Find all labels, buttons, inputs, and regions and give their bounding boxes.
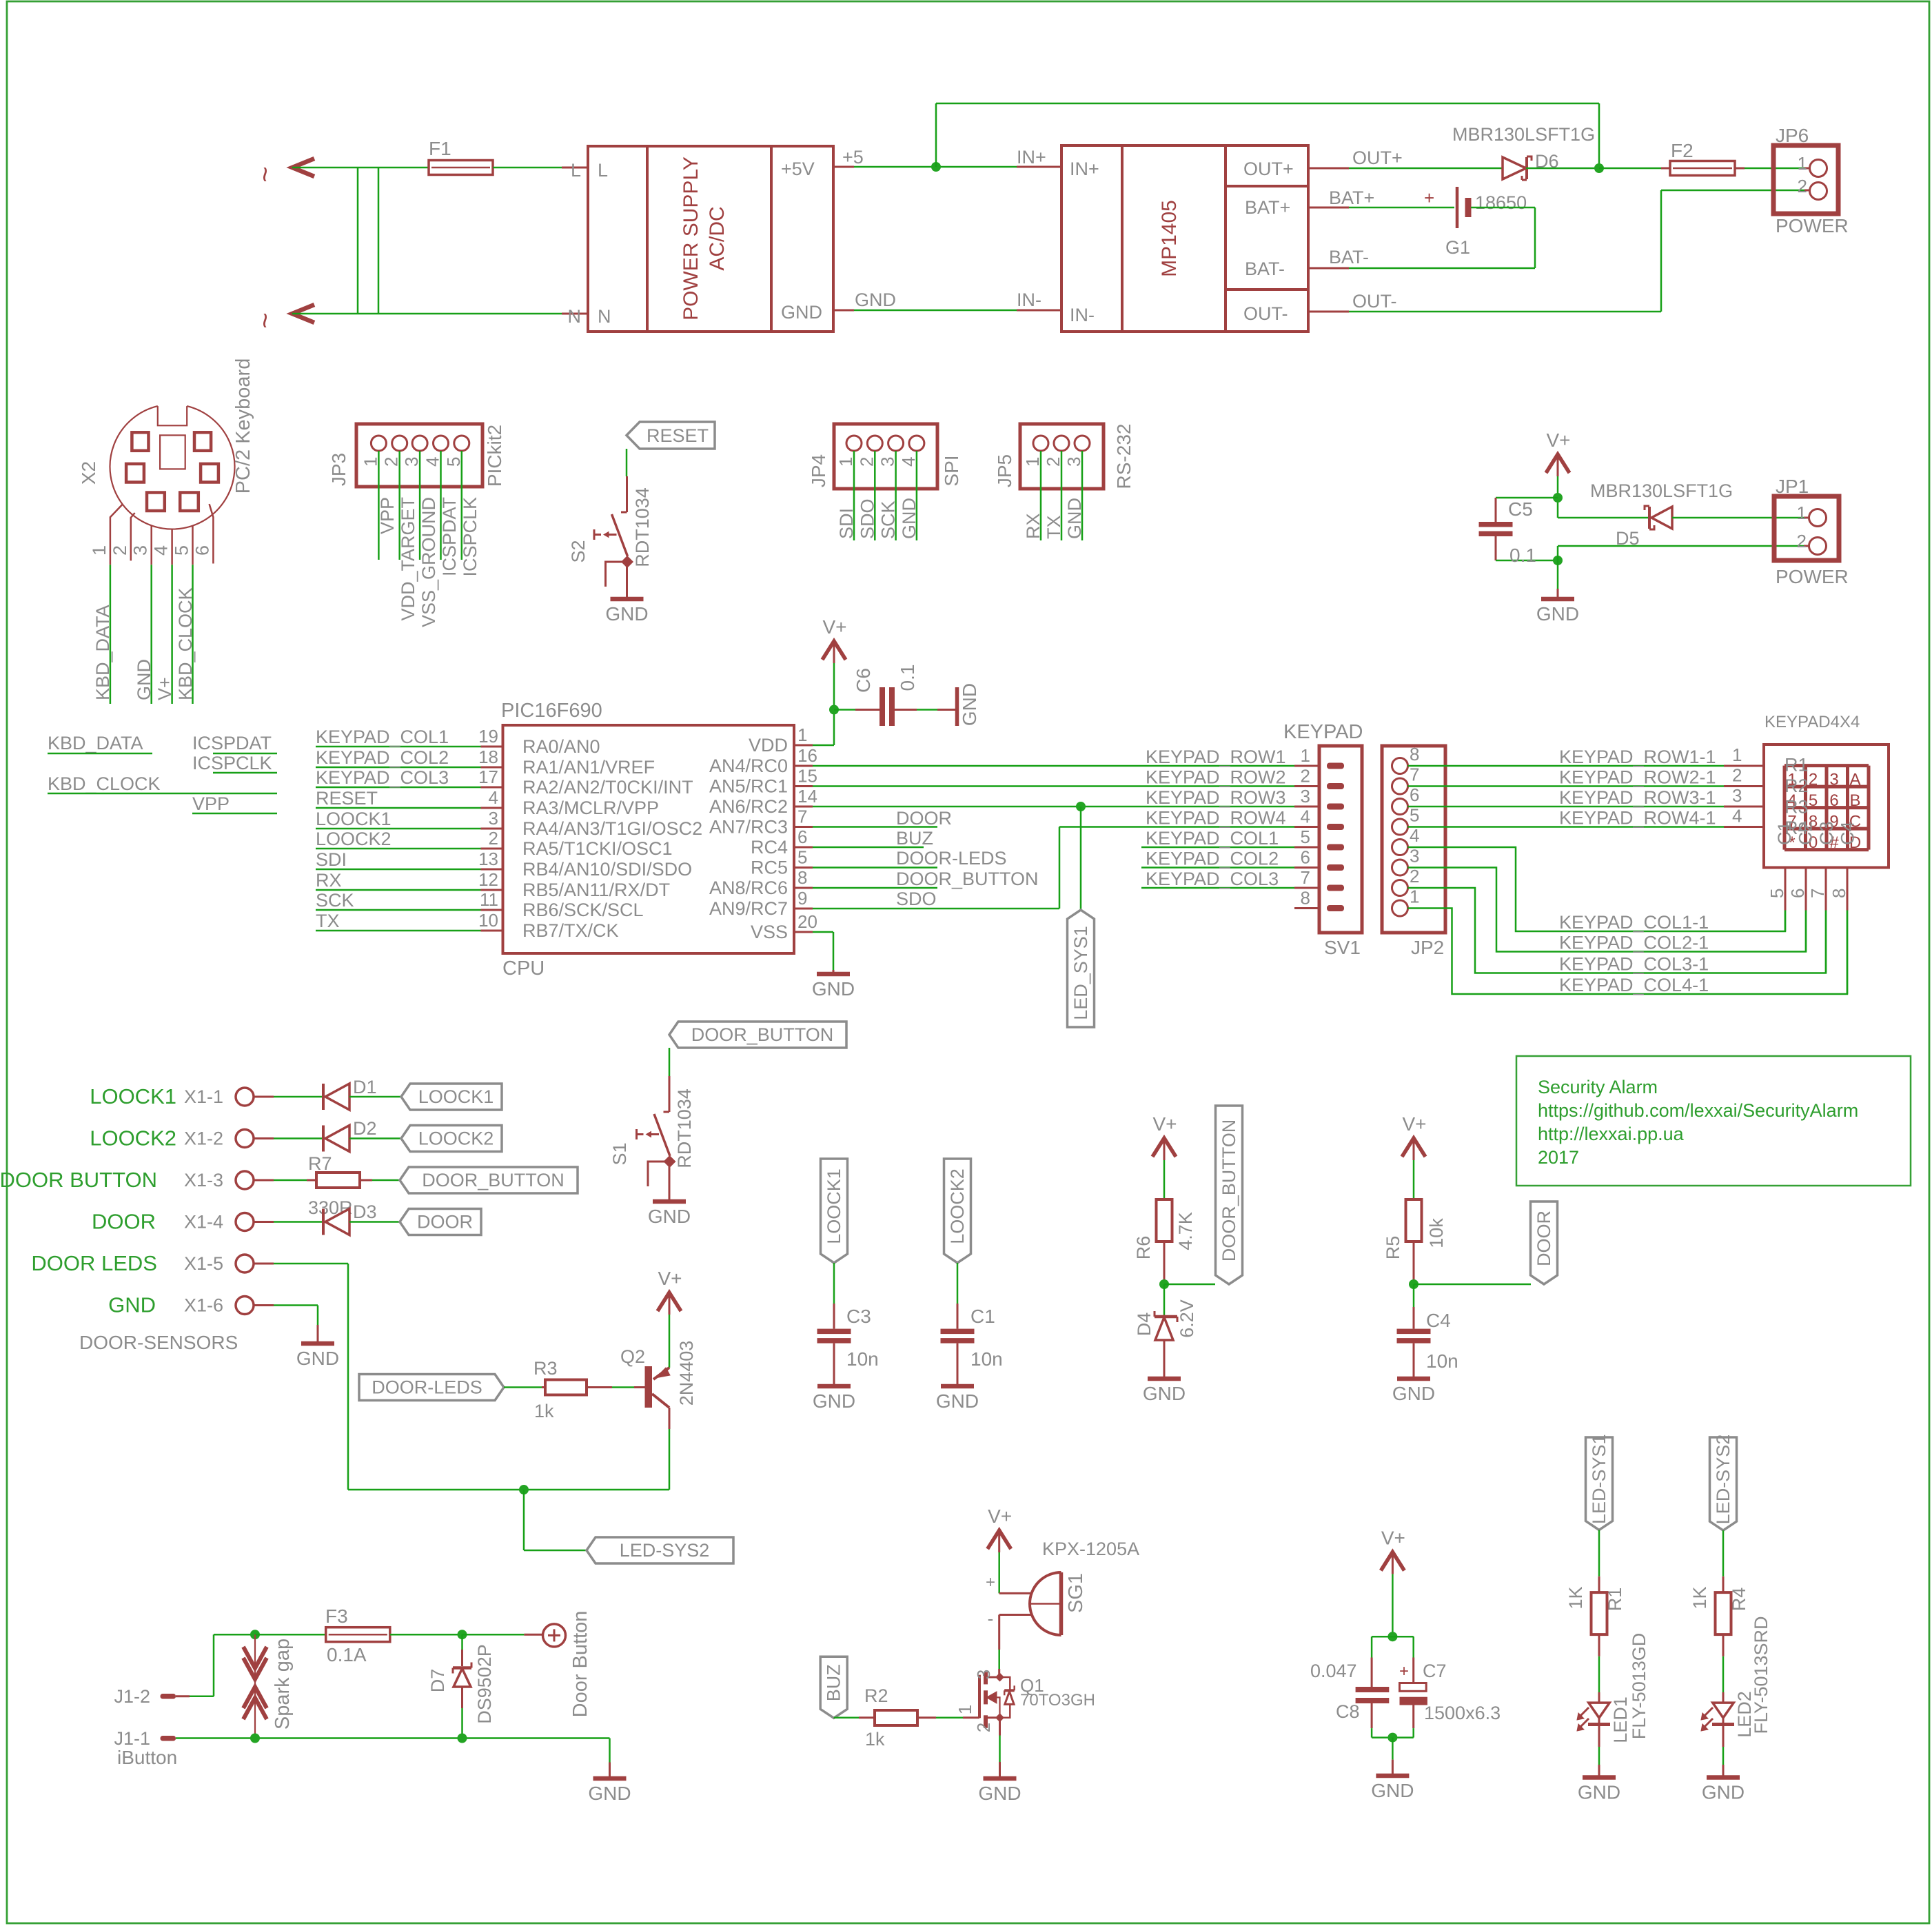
svg-text:ICSPDAT: ICSPDAT	[439, 497, 460, 576]
svg-text:R1: R1	[1784, 755, 1809, 776]
svg-text:1: 1	[1022, 457, 1043, 467]
svg-text:KBD_DATA: KBD_DATA	[92, 605, 113, 700]
svg-text:19: 19	[478, 726, 498, 747]
svg-text:VDD: VDD	[749, 735, 788, 756]
svg-text:Door Button: Door Button	[569, 1611, 591, 1718]
svg-text:3: 3	[401, 457, 422, 467]
svg-text:JP1: JP1	[1776, 476, 1809, 497]
svg-text:KBD_CLOCK: KBD_CLOCK	[48, 773, 161, 794]
svg-text:2: 2	[381, 457, 402, 467]
svg-text:GND: GND	[1371, 1780, 1414, 1801]
svg-text:RA2/AN2/T0CKI/INT: RA2/AN2/T0CKI/INT	[522, 777, 693, 798]
svg-text:8: 8	[797, 867, 807, 888]
svg-text:SDO: SDO	[896, 889, 937, 909]
svg-text:1k: 1k	[865, 1729, 885, 1750]
svg-text:X1-4: X1-4	[184, 1212, 223, 1233]
svg-text:18: 18	[478, 747, 498, 767]
svg-text:RB6/SCK/SCL: RB6/SCK/SCL	[522, 900, 644, 920]
svg-text:2: 2	[1732, 765, 1742, 786]
svg-text:iButton: iButton	[117, 1747, 177, 1768]
svg-text:10n: 10n	[970, 1348, 1003, 1370]
svg-text:LED1: LED1	[1610, 1696, 1631, 1743]
svg-text:3: 3	[973, 1670, 994, 1679]
svg-text:R5: R5	[1383, 1236, 1403, 1260]
svg-text:3: 3	[1829, 771, 1838, 789]
svg-text:KEYPAD_COL2-1: KEYPAD_COL2-1	[1559, 933, 1709, 953]
svg-text:RC4: RC4	[751, 837, 788, 858]
svg-text:N: N	[568, 306, 582, 327]
svg-text:13: 13	[478, 849, 498, 869]
svg-text:+5V: +5V	[781, 159, 815, 179]
svg-text:MBR130LSFT1G: MBR130LSFT1G	[1590, 480, 1733, 501]
svg-text:G1: G1	[1445, 237, 1470, 258]
svg-text:BAT+: BAT+	[1245, 197, 1290, 218]
svg-text:LOOCK1: LOOCK1	[316, 809, 392, 829]
svg-text:KPX-1205A: KPX-1205A	[1042, 1539, 1139, 1559]
svg-text:4: 4	[151, 545, 172, 556]
svg-text:CPU: CPU	[502, 957, 545, 980]
svg-text:330R: 330R	[308, 1197, 353, 1218]
svg-text:5: 5	[1410, 805, 1419, 826]
svg-text:LOOCK2: LOOCK2	[90, 1126, 176, 1150]
svg-text:C2: C2	[1796, 821, 1816, 845]
svg-text:IN+: IN+	[1070, 159, 1099, 179]
svg-text:3: 3	[130, 545, 151, 556]
svg-text:70TO3GH: 70TO3GH	[1020, 1691, 1095, 1710]
svg-text:-: -	[988, 1608, 994, 1629]
svg-text:AN8/RC6: AN8/RC6	[709, 878, 788, 898]
svg-text:VSS_GROUND: VSS_GROUND	[418, 497, 439, 627]
svg-text:2: 2	[1410, 866, 1419, 886]
svg-text:MBR130LSFT1G: MBR130LSFT1G	[1452, 124, 1595, 145]
svg-text:KEYPAD4X4: KEYPAD4X4	[1765, 713, 1860, 731]
svg-text:1: 1	[1410, 886, 1419, 907]
svg-text:BUZ: BUZ	[824, 1664, 844, 1701]
svg-text:GND: GND	[588, 1783, 631, 1804]
svg-text:0.047: 0.047	[1310, 1661, 1357, 1681]
svg-text:4: 4	[898, 457, 919, 467]
svg-text:5: 5	[1767, 889, 1787, 898]
svg-text:6: 6	[1301, 847, 1310, 868]
svg-text:1: 1	[835, 457, 856, 467]
svg-text:10: 10	[478, 910, 498, 931]
svg-text:V+: V+	[1402, 1113, 1426, 1135]
svg-text:V+: V+	[1152, 1113, 1177, 1135]
svg-text:0.1: 0.1	[1509, 545, 1536, 566]
svg-text:C1: C1	[1774, 821, 1795, 845]
svg-text:R3: R3	[1784, 797, 1809, 818]
svg-text:C4: C4	[1426, 1310, 1451, 1331]
svg-text:DOOR: DOOR	[92, 1210, 156, 1234]
svg-text:7: 7	[1410, 764, 1419, 785]
svg-text:F1: F1	[429, 138, 451, 159]
svg-text:1: 1	[1732, 744, 1742, 765]
svg-text:SG1: SG1	[1065, 1573, 1087, 1613]
svg-text:VSS: VSS	[751, 922, 788, 942]
svg-text:1K: 1K	[1689, 1586, 1710, 1609]
svg-text:JP6: JP6	[1776, 125, 1809, 146]
svg-text:IN-: IN-	[1070, 305, 1095, 325]
svg-text:RC5: RC5	[751, 858, 788, 878]
svg-text:L: L	[598, 160, 608, 181]
svg-text:1: 1	[1301, 745, 1310, 766]
svg-text:BAT+: BAT+	[1329, 187, 1374, 208]
svg-text:VPP: VPP	[377, 497, 398, 534]
svg-text:GND: GND	[855, 290, 896, 310]
svg-text:R1: R1	[1605, 1588, 1625, 1612]
svg-text:+: +	[986, 1573, 995, 1592]
svg-text:C1: C1	[970, 1306, 995, 1327]
svg-text:DOOR_BUTTON: DOOR_BUTTON	[691, 1024, 834, 1045]
svg-text:X1-1: X1-1	[184, 1086, 223, 1107]
svg-text:8: 8	[1410, 744, 1419, 764]
svg-text:DOOR-LEDS: DOOR-LEDS	[372, 1377, 482, 1398]
svg-text:AN9/RC7: AN9/RC7	[709, 898, 788, 919]
svg-text:RA5/T1CKI/OSC1: RA5/T1CKI/OSC1	[522, 838, 673, 859]
svg-text:15: 15	[797, 766, 817, 787]
svg-text:LOOCK2: LOOCK2	[418, 1128, 494, 1149]
svg-text:11: 11	[480, 889, 498, 910]
svg-text:GND: GND	[1536, 603, 1579, 625]
svg-text:GND: GND	[605, 603, 648, 625]
svg-text:1: 1	[1798, 153, 1807, 174]
svg-text:16: 16	[797, 745, 817, 766]
svg-text:10n: 10n	[1426, 1350, 1458, 1372]
svg-text:5: 5	[443, 457, 464, 467]
svg-text:X2: X2	[78, 461, 99, 485]
svg-text:http://lexxai.pp.ua: http://lexxai.pp.ua	[1538, 1124, 1685, 1144]
svg-text:1: 1	[360, 457, 380, 467]
svg-text:LED-SYS2: LED-SYS2	[620, 1540, 710, 1561]
svg-text:KEYPAD_COL2: KEYPAD_COL2	[316, 747, 449, 768]
svg-text:5: 5	[1301, 827, 1310, 847]
svg-text:LOOCK1: LOOCK1	[824, 1168, 844, 1244]
svg-text:6: 6	[1787, 889, 1808, 898]
svg-text:DOOR_BUTTON: DOOR_BUTTON	[1219, 1119, 1239, 1262]
svg-text:2: 2	[1043, 457, 1064, 467]
svg-text:4: 4	[489, 787, 498, 808]
svg-text:D3: D3	[353, 1202, 377, 1222]
svg-text:OUT-: OUT-	[1243, 303, 1288, 324]
svg-text:D7: D7	[427, 1669, 448, 1693]
svg-text:1K: 1K	[1565, 1586, 1586, 1609]
svg-text:~: ~	[250, 312, 281, 328]
svg-text:2: 2	[1809, 771, 1818, 789]
svg-text:OUT+: OUT+	[1352, 148, 1403, 168]
svg-text:4.7K: 4.7K	[1175, 1212, 1196, 1250]
svg-text:3: 3	[1410, 846, 1419, 866]
svg-text:Security Alarm: Security Alarm	[1538, 1077, 1658, 1097]
svg-text:7: 7	[1807, 889, 1828, 898]
svg-text:DS9502P: DS9502P	[474, 1644, 495, 1724]
svg-text:R2: R2	[864, 1685, 888, 1706]
svg-text:GND: GND	[936, 1390, 979, 1412]
svg-text:ICSPCLK: ICSPCLK	[192, 753, 272, 773]
svg-text:IN-: IN-	[1017, 290, 1041, 310]
svg-text:DOOR LEDS: DOOR LEDS	[31, 1251, 157, 1275]
svg-text:C5: C5	[1508, 498, 1533, 520]
svg-text:S2: S2	[568, 540, 589, 562]
svg-text:SCK: SCK	[878, 500, 899, 539]
svg-text:JP5: JP5	[994, 454, 1015, 487]
svg-text:3: 3	[1301, 786, 1310, 807]
svg-text:LED-SYS1: LED-SYS1	[1589, 1434, 1609, 1524]
svg-text:SDO: SDO	[857, 498, 877, 539]
svg-text:GND: GND	[108, 1293, 156, 1317]
svg-text:KEYPAD_ROW1: KEYPAD_ROW1	[1146, 747, 1286, 767]
svg-text:3: 3	[1732, 785, 1742, 806]
svg-text:2: 2	[1798, 176, 1807, 196]
svg-text:KEYPAD_COL1: KEYPAD_COL1	[1146, 828, 1279, 849]
svg-text:SDI: SDI	[836, 508, 857, 539]
svg-text:3: 3	[1064, 457, 1084, 467]
svg-text:RX: RX	[316, 870, 342, 891]
svg-text:MP1405: MP1405	[1158, 200, 1181, 277]
svg-text:D4: D4	[1134, 1312, 1155, 1337]
svg-text:DOOR-LEDS: DOOR-LEDS	[896, 848, 1007, 869]
svg-text:JP4: JP4	[808, 454, 829, 487]
svg-text:KEYPAD_ROW4-1: KEYPAD_ROW4-1	[1559, 808, 1716, 829]
svg-text:BUZ: BUZ	[896, 828, 933, 849]
svg-text:6: 6	[1829, 791, 1838, 810]
svg-text:5: 5	[172, 545, 192, 556]
svg-text:AC/DC: AC/DC	[706, 206, 729, 270]
svg-text:GND: GND	[1064, 498, 1085, 539]
svg-text:LED-SYS2: LED-SYS2	[1713, 1435, 1733, 1525]
svg-text:17: 17	[478, 767, 498, 787]
svg-text:V+: V+	[658, 1268, 682, 1289]
svg-text:R4: R4	[1729, 1588, 1749, 1612]
svg-text:AN4/RC0: AN4/RC0	[709, 756, 788, 776]
svg-text:RDT1034: RDT1034	[632, 487, 653, 567]
svg-text:3: 3	[489, 808, 498, 829]
svg-text:GND: GND	[296, 1348, 339, 1369]
svg-text:F3: F3	[325, 1605, 348, 1627]
svg-text:KEYPAD_COL2: KEYPAD_COL2	[1146, 849, 1279, 869]
svg-text:SDI: SDI	[316, 849, 347, 870]
svg-text:V+: V+	[154, 677, 175, 700]
svg-text:8: 8	[1829, 889, 1849, 898]
svg-text:+: +	[1424, 187, 1434, 208]
svg-text:KEYPAD_ROW3-1: KEYPAD_ROW3-1	[1559, 787, 1716, 808]
svg-text:VDD_TARGET: VDD_TARGET	[398, 497, 418, 621]
svg-text:C3: C3	[1816, 821, 1837, 845]
svg-text:GND: GND	[1702, 1782, 1745, 1803]
svg-text:10k: 10k	[1426, 1218, 1447, 1248]
svg-text:LOOCK1: LOOCK1	[418, 1086, 494, 1107]
svg-text:DOOR_BUTTON: DOOR_BUTTON	[896, 869, 1039, 889]
svg-text:AN5/RC1: AN5/RC1	[709, 776, 788, 797]
svg-text:KBD_CLOCK: KBD_CLOCK	[175, 587, 196, 700]
svg-text:18650: 18650	[1475, 192, 1527, 213]
svg-text:TX: TX	[316, 911, 340, 931]
svg-text:SPI: SPI	[941, 455, 962, 486]
svg-text:JP2: JP2	[1411, 937, 1444, 958]
svg-text:20: 20	[797, 911, 817, 932]
svg-text:4: 4	[423, 457, 443, 467]
svg-text:C7: C7	[1423, 1661, 1447, 1681]
svg-text:GND: GND	[899, 498, 919, 539]
svg-text:RDT1034: RDT1034	[674, 1088, 695, 1168]
svg-text:2: 2	[110, 545, 130, 556]
svg-text:RX: RX	[1023, 513, 1044, 539]
svg-text:ICSPDAT: ICSPDAT	[192, 733, 272, 753]
svg-text:N: N	[598, 306, 611, 327]
svg-text:GND: GND	[812, 978, 855, 1000]
svg-text:F2: F2	[1671, 140, 1694, 161]
svg-text:POWER: POWER	[1776, 215, 1849, 236]
svg-text:OUT-: OUT-	[1352, 291, 1397, 312]
svg-text:LOOCK2: LOOCK2	[947, 1168, 968, 1244]
svg-text:D1: D1	[353, 1077, 377, 1097]
svg-text:LED_SYS1: LED_SYS1	[1070, 926, 1091, 1020]
svg-text:7: 7	[1301, 867, 1310, 888]
svg-text:RESET: RESET	[316, 788, 378, 809]
svg-text:14: 14	[797, 786, 817, 807]
svg-text:PC/2 Keyboard: PC/2 Keyboard	[232, 358, 254, 494]
svg-text:POWER SUPPLY: POWER SUPPLY	[680, 156, 702, 321]
svg-text:LOOCK1: LOOCK1	[90, 1084, 176, 1108]
svg-text:6: 6	[797, 827, 807, 847]
svg-text:R7: R7	[308, 1153, 332, 1174]
svg-text:DOOR: DOOR	[1534, 1210, 1554, 1266]
svg-text:C3: C3	[846, 1306, 871, 1327]
svg-text:D2: D2	[353, 1118, 377, 1139]
svg-text:R3: R3	[533, 1358, 558, 1379]
svg-text:KEYPAD_ROW1-1: KEYPAD_ROW1-1	[1559, 747, 1716, 767]
svg-text:1: 1	[89, 545, 110, 556]
svg-text:DOOR-SENSORS: DOOR-SENSORS	[79, 1332, 238, 1353]
svg-text:RESET: RESET	[647, 425, 709, 446]
svg-text:+: +	[1399, 1662, 1409, 1681]
svg-text:+5: +5	[842, 147, 864, 168]
svg-text:VPP: VPP	[192, 793, 230, 814]
svg-text:GND: GND	[134, 659, 154, 700]
svg-text:AN7/RC3: AN7/RC3	[709, 817, 788, 838]
svg-text:DOOR BUTTON: DOOR BUTTON	[0, 1168, 157, 1192]
svg-text:AN6/RC2: AN6/RC2	[709, 796, 788, 817]
svg-text:IN+: IN+	[1017, 147, 1046, 168]
svg-text:1: 1	[797, 724, 807, 745]
svg-text:4: 4	[1301, 807, 1310, 827]
svg-text:6.2V: 6.2V	[1177, 1299, 1197, 1338]
svg-text:6: 6	[1410, 784, 1419, 805]
svg-text:DOOR: DOOR	[896, 808, 952, 829]
svg-text:TX: TX	[1044, 515, 1064, 539]
svg-text:J1-1: J1-1	[114, 1728, 150, 1749]
svg-text:RA4/AN3/T1GI/OSC2: RA4/AN3/T1GI/OSC2	[522, 818, 702, 839]
svg-text:Spark gap: Spark gap	[272, 1639, 294, 1730]
svg-text:BAT-: BAT-	[1329, 247, 1369, 267]
svg-text:LOOCK2: LOOCK2	[316, 829, 392, 849]
svg-text:4: 4	[1732, 806, 1742, 827]
svg-text:GND: GND	[978, 1783, 1021, 1804]
svg-text:FLY-5013SRD: FLY-5013SRD	[1751, 1616, 1771, 1734]
svg-text:~: ~	[250, 166, 281, 182]
svg-text:X1-3: X1-3	[184, 1170, 223, 1190]
svg-text:ICSPCLK: ICSPCLK	[460, 497, 480, 577]
svg-text:2: 2	[1301, 766, 1310, 787]
svg-text:1k: 1k	[534, 1401, 554, 1421]
svg-text:RB7/TX/CK: RB7/TX/CK	[522, 920, 619, 941]
svg-text:4: 4	[1410, 825, 1419, 846]
svg-text:POWER: POWER	[1776, 566, 1849, 587]
svg-text:DOOR: DOOR	[417, 1212, 473, 1233]
svg-text:B: B	[1849, 791, 1860, 810]
svg-text:7: 7	[797, 807, 807, 827]
svg-text:GND: GND	[1392, 1383, 1435, 1404]
svg-text:GND: GND	[781, 302, 822, 323]
svg-text:SV1: SV1	[1324, 937, 1361, 958]
svg-text:R2: R2	[1784, 776, 1809, 796]
svg-text:GND: GND	[1143, 1383, 1186, 1404]
svg-text:RB5/AN11/RX/DT: RB5/AN11/RX/DT	[522, 880, 670, 900]
svg-text:C6: C6	[853, 668, 874, 693]
svg-text:C4: C4	[1838, 821, 1858, 845]
svg-text:8: 8	[1301, 888, 1310, 909]
svg-text:RS-232: RS-232	[1113, 424, 1135, 489]
svg-text:V+: V+	[1381, 1527, 1405, 1548]
svg-text:9: 9	[797, 888, 807, 909]
svg-text:2: 2	[489, 828, 498, 849]
svg-text:2N4403: 2N4403	[676, 1341, 697, 1406]
svg-text:KEYPAD_ROW3: KEYPAD_ROW3	[1146, 787, 1286, 808]
svg-text:KEYPAD_COL1-1: KEYPAD_COL1-1	[1559, 912, 1709, 933]
svg-text:BAT-: BAT-	[1245, 259, 1285, 279]
svg-text:KEYPAD_COL3: KEYPAD_COL3	[316, 767, 449, 788]
svg-text:2: 2	[1797, 531, 1807, 551]
svg-text:2: 2	[856, 457, 877, 467]
svg-text:1: 1	[1797, 503, 1807, 523]
svg-text:KEYPAD_ROW2-1: KEYPAD_ROW2-1	[1559, 767, 1716, 788]
svg-text:GND: GND	[959, 683, 980, 726]
svg-text:https://github.com/lexxai/Secu: https://github.com/lexxai/SecurityAlarm	[1538, 1100, 1858, 1121]
svg-text:KBD_DATA: KBD_DATA	[48, 733, 143, 753]
svg-text:X1-6: X1-6	[184, 1295, 223, 1316]
svg-text:5: 5	[1809, 791, 1818, 810]
svg-text:2017: 2017	[1538, 1147, 1579, 1168]
svg-text:6: 6	[192, 545, 212, 556]
svg-text:KEYPAD_ROW4: KEYPAD_ROW4	[1146, 808, 1286, 829]
svg-text:JP3: JP3	[328, 453, 349, 486]
svg-text:PICkit2: PICkit2	[484, 425, 505, 487]
svg-text:FLY-5013GD: FLY-5013GD	[1629, 1633, 1649, 1740]
svg-text:X1-5: X1-5	[184, 1253, 223, 1274]
svg-text:RA3/MCLR/VPP: RA3/MCLR/VPP	[522, 798, 659, 818]
svg-text:L: L	[571, 160, 581, 181]
svg-text:V+: V+	[822, 616, 846, 638]
svg-text:DOOR_BUTTON: DOOR_BUTTON	[422, 1170, 565, 1190]
svg-text:5: 5	[797, 847, 807, 868]
svg-text:KEYPAD_COL1: KEYPAD_COL1	[316, 727, 449, 747]
svg-text:RB4/AN10/SDI/SDO: RB4/AN10/SDI/SDO	[522, 859, 692, 880]
svg-text:V+: V+	[1546, 429, 1570, 451]
svg-text:KEYPAD_COL3-1: KEYPAD_COL3-1	[1559, 954, 1709, 975]
svg-text:V+: V+	[988, 1506, 1012, 1527]
svg-text:1: 1	[955, 1705, 975, 1714]
svg-text:GND: GND	[648, 1206, 691, 1227]
svg-text:1500x6.3: 1500x6.3	[1424, 1703, 1501, 1723]
svg-text:KEYPAD: KEYPAD	[1283, 721, 1363, 743]
svg-text:A: A	[1849, 771, 1860, 789]
svg-text:C8: C8	[1336, 1701, 1360, 1722]
svg-text:KEYPAD_ROW2: KEYPAD_ROW2	[1146, 767, 1286, 788]
svg-text:GND: GND	[813, 1390, 855, 1412]
svg-text:RA0/AN0: RA0/AN0	[522, 736, 600, 757]
svg-text:R6: R6	[1133, 1236, 1154, 1260]
svg-text:S1: S1	[609, 1142, 630, 1165]
svg-text:Q2: Q2	[620, 1346, 645, 1367]
